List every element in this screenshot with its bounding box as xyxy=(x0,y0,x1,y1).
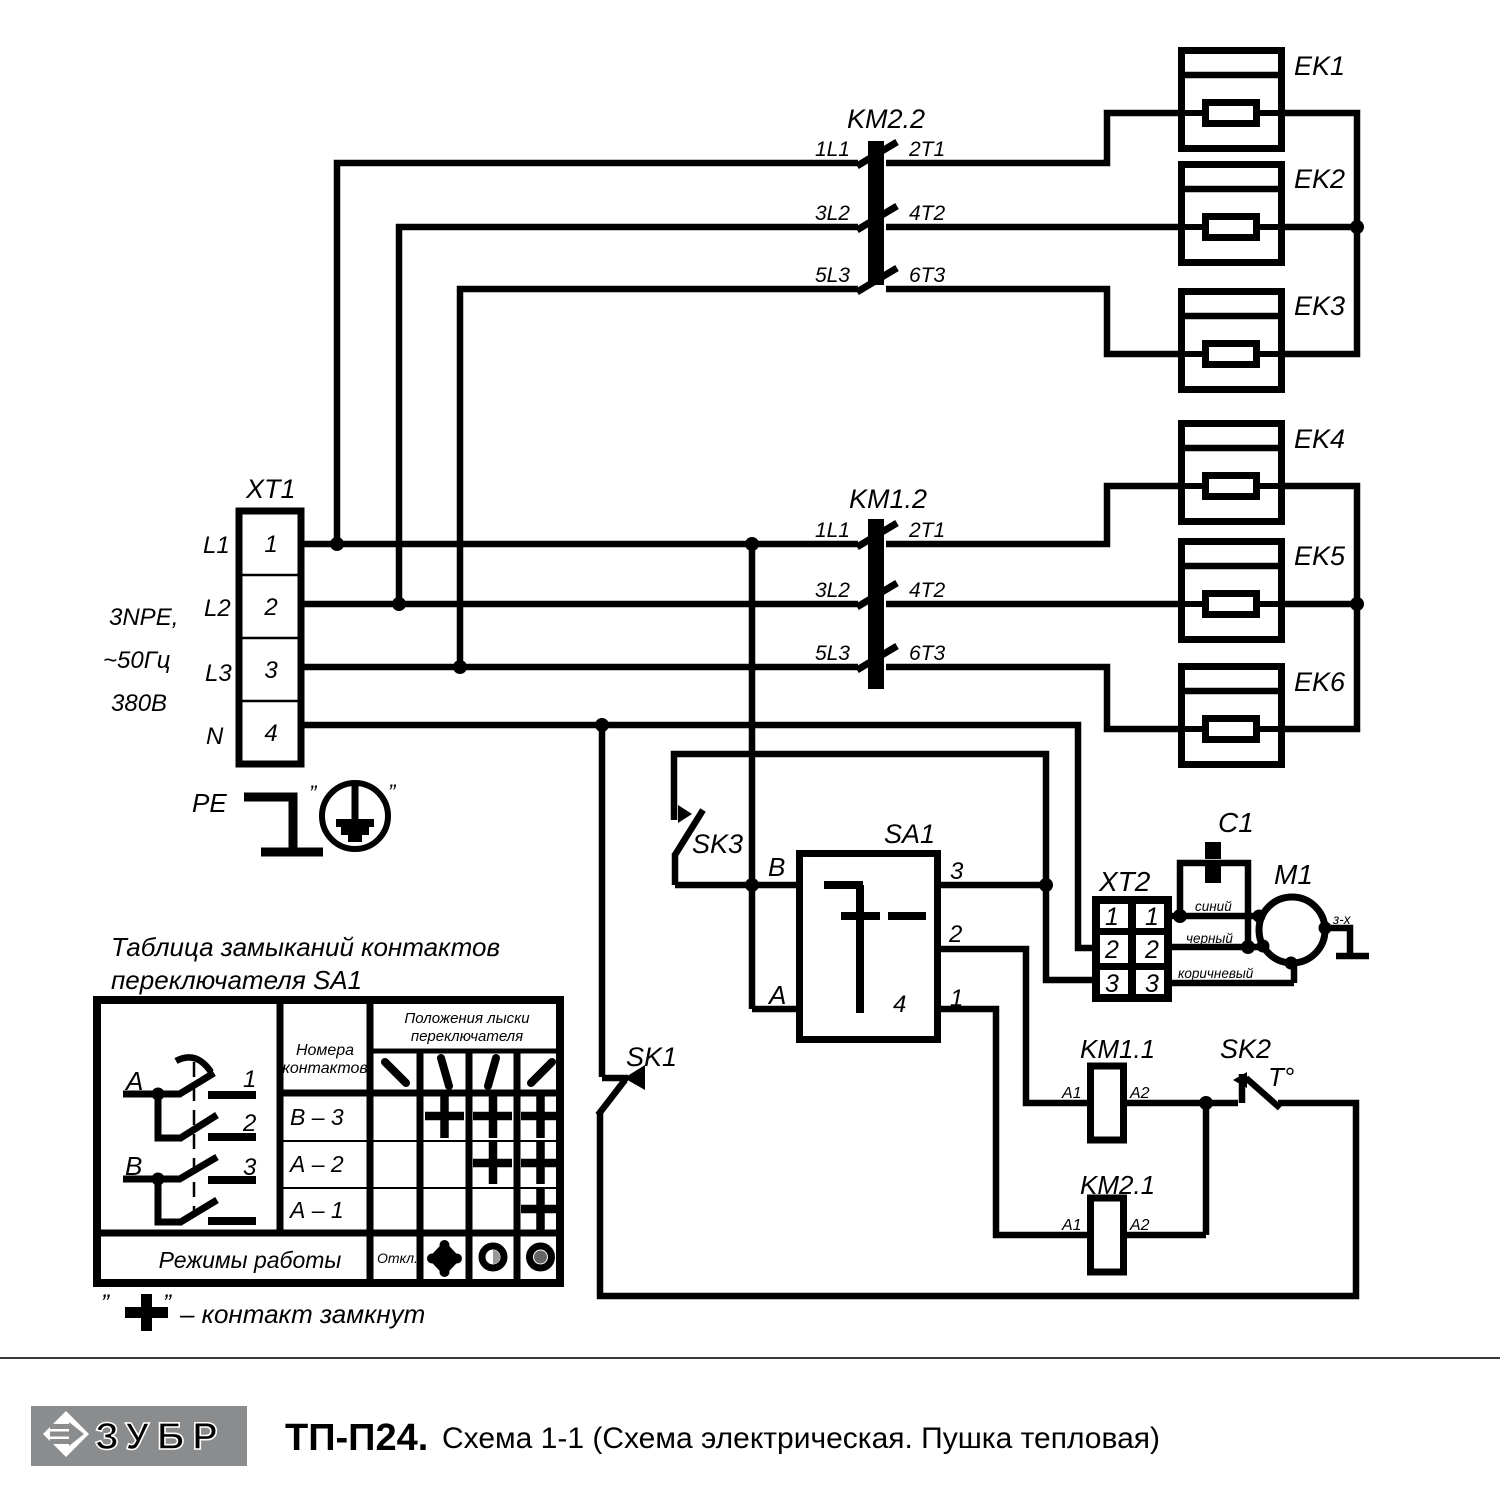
svg-text:Положения лыски: Положения лыски xyxy=(404,1010,530,1027)
svg-text:L3: L3 xyxy=(205,660,232,687)
svg-text:5L3: 5L3 xyxy=(815,642,850,665)
svg-text:A: A xyxy=(124,1066,143,1096)
svg-text:А – 2: А – 2 xyxy=(288,1151,344,1177)
svg-text:2T1: 2T1 xyxy=(908,519,945,542)
svg-text:2: 2 xyxy=(948,921,962,948)
svg-text:А – 1: А – 1 xyxy=(288,1197,344,1223)
svg-text:1: 1 xyxy=(1145,903,1159,931)
svg-text:2: 2 xyxy=(1144,936,1159,964)
svg-text:A2: A2 xyxy=(1129,1085,1150,1102)
svg-text:EK1: EK1 xyxy=(1294,51,1345,81)
svg-text:3: 3 xyxy=(950,858,964,885)
svg-text:B: B xyxy=(768,852,785,882)
svg-text:KM1.1: KM1.1 xyxy=(1080,1034,1155,1064)
svg-text:”: ” xyxy=(388,780,397,805)
svg-text:контактов: контактов xyxy=(282,1060,367,1077)
svg-text:переключателя SA1: переключателя SA1 xyxy=(111,965,362,995)
svg-text:3: 3 xyxy=(264,657,278,684)
svg-text:ТП-П24.: ТП-П24. xyxy=(285,1417,428,1459)
svg-text:KM2.2: KM2.2 xyxy=(847,104,925,134)
svg-text:T°: T° xyxy=(1268,1062,1294,1092)
svg-text:1: 1 xyxy=(1105,903,1119,931)
svg-text:переключателя: переключателя xyxy=(411,1028,523,1045)
svg-text:2T1: 2T1 xyxy=(908,138,945,161)
svg-text:XT1: XT1 xyxy=(245,474,296,504)
svg-text:5L3: 5L3 xyxy=(815,264,850,287)
svg-text:”: ” xyxy=(309,781,318,806)
svg-text:380В: 380В xyxy=(111,690,167,717)
svg-text:коричневый: коричневый xyxy=(1178,966,1254,981)
svg-text:SK3: SK3 xyxy=(692,829,743,859)
svg-text:6T3: 6T3 xyxy=(909,642,946,665)
svg-text:Схема 1-1 (Схема электрическая: Схема 1-1 (Схема электрическая. Пушка те… xyxy=(442,1422,1160,1455)
svg-text:”: ” xyxy=(163,1290,172,1317)
svg-text:ЗУБР: ЗУБР xyxy=(95,1416,226,1458)
svg-text:EK6: EK6 xyxy=(1294,667,1346,697)
svg-text:EK5: EK5 xyxy=(1294,541,1346,571)
svg-text:4T2: 4T2 xyxy=(909,202,946,225)
svg-text:L2: L2 xyxy=(204,595,231,622)
svg-text:PE: PE xyxy=(192,788,227,818)
svg-text:C1: C1 xyxy=(1218,807,1254,838)
svg-text:~50Гц: ~50Гц xyxy=(103,647,171,674)
svg-text:черный: черный xyxy=(1186,931,1233,946)
svg-text:2: 2 xyxy=(242,1110,256,1137)
svg-text:6T3: 6T3 xyxy=(909,264,946,287)
svg-text:EK4: EK4 xyxy=(1294,424,1345,454)
svg-text:Откл.: Откл. xyxy=(377,1250,418,1266)
svg-text:A1: A1 xyxy=(1061,1085,1082,1102)
svg-text:KM1.2: KM1.2 xyxy=(849,484,927,514)
svg-text:1L1: 1L1 xyxy=(815,138,850,161)
svg-text:SK2: SK2 xyxy=(1220,1034,1271,1064)
svg-text:SK1: SK1 xyxy=(626,1042,677,1072)
svg-text:1: 1 xyxy=(243,1066,256,1093)
svg-text:з-х: з-х xyxy=(1332,912,1352,927)
svg-text:A: A xyxy=(767,980,786,1010)
svg-text:N: N xyxy=(206,723,224,750)
svg-text:XT2: XT2 xyxy=(1098,866,1151,897)
svg-text:1: 1 xyxy=(950,985,963,1012)
svg-text:3: 3 xyxy=(1105,970,1119,998)
svg-text:3: 3 xyxy=(1145,970,1159,998)
svg-text:SA1: SA1 xyxy=(884,819,935,849)
svg-text:KM2.1: KM2.1 xyxy=(1080,1170,1155,1200)
svg-text:”: ” xyxy=(101,1290,110,1317)
svg-text:A2: A2 xyxy=(1129,1217,1150,1234)
svg-text:A1: A1 xyxy=(1061,1217,1082,1234)
svg-text:4: 4 xyxy=(264,720,277,747)
svg-text:EK3: EK3 xyxy=(1294,291,1345,321)
svg-text:3L2: 3L2 xyxy=(815,202,850,225)
svg-text:2: 2 xyxy=(263,594,277,621)
svg-text:B: B xyxy=(125,1151,142,1181)
svg-text:3NPE,: 3NPE, xyxy=(109,604,178,631)
svg-text:– контакт замкнут: – контакт замкнут xyxy=(179,1299,425,1329)
svg-text:1: 1 xyxy=(264,531,277,558)
svg-text:1L1: 1L1 xyxy=(815,519,850,542)
svg-text:Таблица замыканий контактов: Таблица замыканий контактов xyxy=(111,932,500,962)
svg-text:3L2: 3L2 xyxy=(815,579,850,602)
svg-text:Номера: Номера xyxy=(296,1042,354,1059)
svg-text:3: 3 xyxy=(243,1154,257,1181)
svg-text:L1: L1 xyxy=(203,532,230,559)
svg-text:4: 4 xyxy=(893,991,906,1018)
svg-text:EK2: EK2 xyxy=(1294,164,1345,194)
svg-text:синий: синий xyxy=(1195,899,1232,914)
svg-text:4T2: 4T2 xyxy=(909,579,946,602)
svg-text:2: 2 xyxy=(1104,936,1119,964)
svg-text:Режимы работы: Режимы работы xyxy=(159,1247,342,1273)
svg-text:В – 3: В – 3 xyxy=(290,1104,344,1130)
svg-text:M1: M1 xyxy=(1274,859,1313,890)
